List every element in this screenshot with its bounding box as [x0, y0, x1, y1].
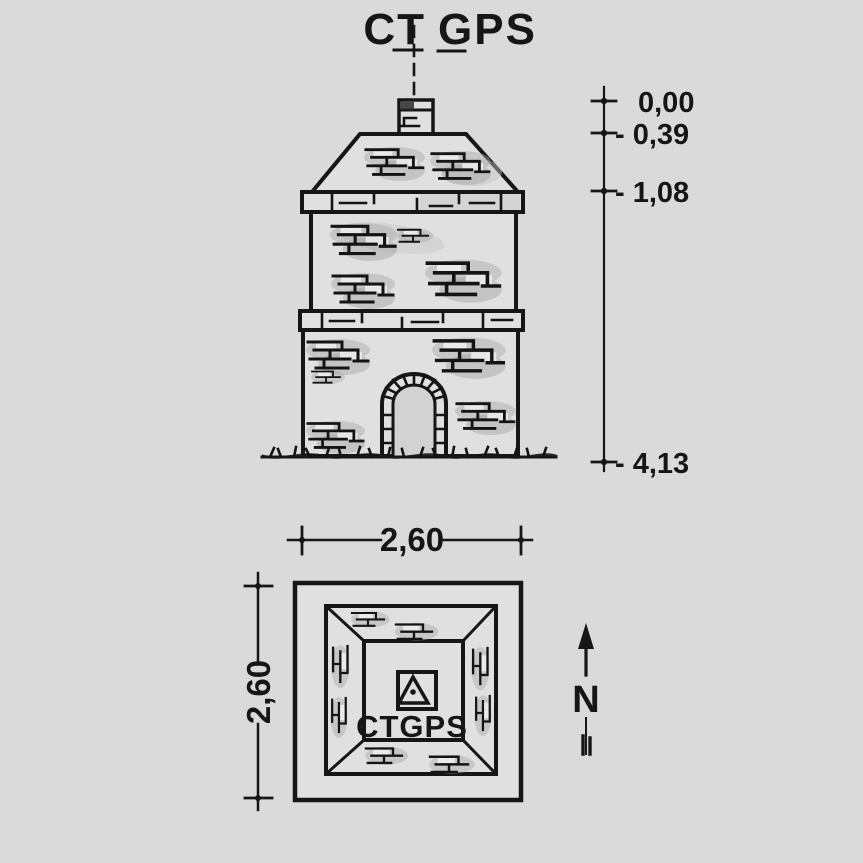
- station-title: CT GPS: [363, 5, 537, 54]
- level-label-3: - 4,13: [615, 448, 689, 480]
- brick-patch: [351, 611, 389, 627]
- brick-patch: [429, 755, 475, 774]
- brick-patch: [397, 228, 433, 243]
- brick-patch: [395, 623, 438, 641]
- brick-patch: [474, 695, 491, 736]
- plan-width-label: 2,60: [380, 521, 444, 558]
- brick-patch: [311, 370, 345, 384]
- monument-drawing: CT GPS: [0, 0, 863, 863]
- north-label: N: [572, 679, 599, 721]
- plan-view: 2,60 2,60: [240, 521, 600, 810]
- level-label-0: 0,00: [638, 87, 694, 119]
- cornice-upper: [302, 192, 523, 212]
- plan-marker-label: CTGPS: [356, 709, 468, 744]
- brick-patch: [365, 747, 408, 765]
- station-title-right: GPS: [438, 5, 537, 54]
- level-tick-3: [592, 459, 616, 465]
- plan-width-dimension: 2,60: [288, 521, 532, 558]
- height-dimension: 0,00 - 0,39 - 1,08 - 4,13: [592, 87, 694, 480]
- elevation-view: CT GPS: [262, 5, 694, 480]
- tower-upper-body: [311, 212, 516, 311]
- north-arrow-tail: [583, 718, 590, 754]
- level-label-1: - 0,39: [615, 119, 689, 151]
- brick-patch: [330, 697, 347, 738]
- plan-structure: CTGPS: [295, 583, 521, 800]
- level-tick-0: [592, 98, 616, 104]
- arch-opening: [393, 385, 435, 456]
- station-cap: [399, 100, 433, 135]
- level-tick-1: [592, 130, 616, 136]
- level-tick-2: [592, 188, 616, 194]
- station-title-left: CT: [363, 5, 426, 54]
- brick-patch: [331, 645, 349, 688]
- plan-depth-dimension: 2,60: [240, 573, 277, 810]
- marker-point: [410, 689, 416, 695]
- technical-drawing-sheet: CT GPS: [0, 0, 863, 863]
- north-arrow-icon: N: [572, 623, 599, 754]
- roof: [312, 134, 518, 192]
- cap-shadow: [401, 102, 414, 110]
- plan-depth-label: 2,60: [240, 660, 277, 724]
- level-label-2: - 1,08: [615, 177, 689, 209]
- tower-lower-body: [303, 330, 518, 456]
- cornice-lower: [300, 311, 523, 330]
- brick-patch: [471, 647, 489, 690]
- tower-elevation: [262, 100, 556, 457]
